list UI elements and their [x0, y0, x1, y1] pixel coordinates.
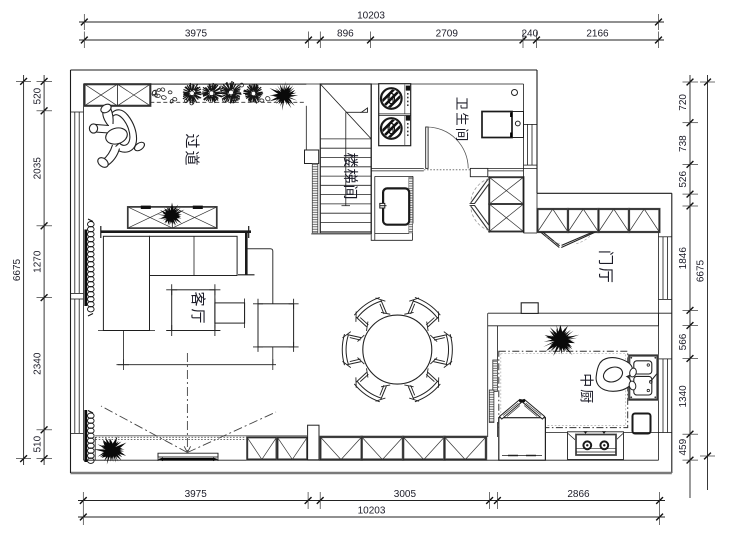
svg-text:2866: 2866: [567, 489, 590, 500]
svg-text:720: 720: [678, 94, 689, 111]
svg-text:2340: 2340: [33, 352, 44, 375]
svg-text:3975: 3975: [185, 489, 208, 500]
svg-text:526: 526: [678, 171, 689, 188]
svg-text:738: 738: [678, 135, 689, 152]
svg-text:3005: 3005: [394, 489, 417, 500]
svg-text:1270: 1270: [33, 250, 44, 273]
svg-text:520: 520: [33, 87, 44, 104]
svg-text:2166: 2166: [586, 29, 609, 40]
svg-text:566: 566: [678, 333, 689, 350]
svg-text:楼梯间: 楼梯间: [341, 152, 358, 200]
svg-text:6675: 6675: [12, 258, 23, 281]
svg-text:10203: 10203: [357, 11, 385, 22]
svg-text:2709: 2709: [436, 29, 459, 40]
svg-text:510: 510: [33, 435, 44, 452]
svg-text:10203: 10203: [358, 506, 386, 517]
svg-text:过道: 过道: [183, 133, 200, 167]
svg-text:896: 896: [337, 29, 354, 40]
svg-text:240: 240: [521, 29, 538, 40]
svg-text:459: 459: [678, 438, 689, 455]
svg-text:1340: 1340: [678, 385, 689, 408]
svg-text:2035: 2035: [33, 157, 44, 180]
svg-text:中厨: 中厨: [578, 373, 594, 405]
svg-text:6675: 6675: [696, 259, 707, 282]
svg-text:客厅: 客厅: [189, 291, 206, 325]
svg-text:1846: 1846: [678, 247, 689, 270]
svg-text:3975: 3975: [185, 29, 208, 40]
svg-text:卫生间: 卫生间: [454, 97, 469, 144]
svg-text:门厅: 门厅: [597, 250, 615, 285]
